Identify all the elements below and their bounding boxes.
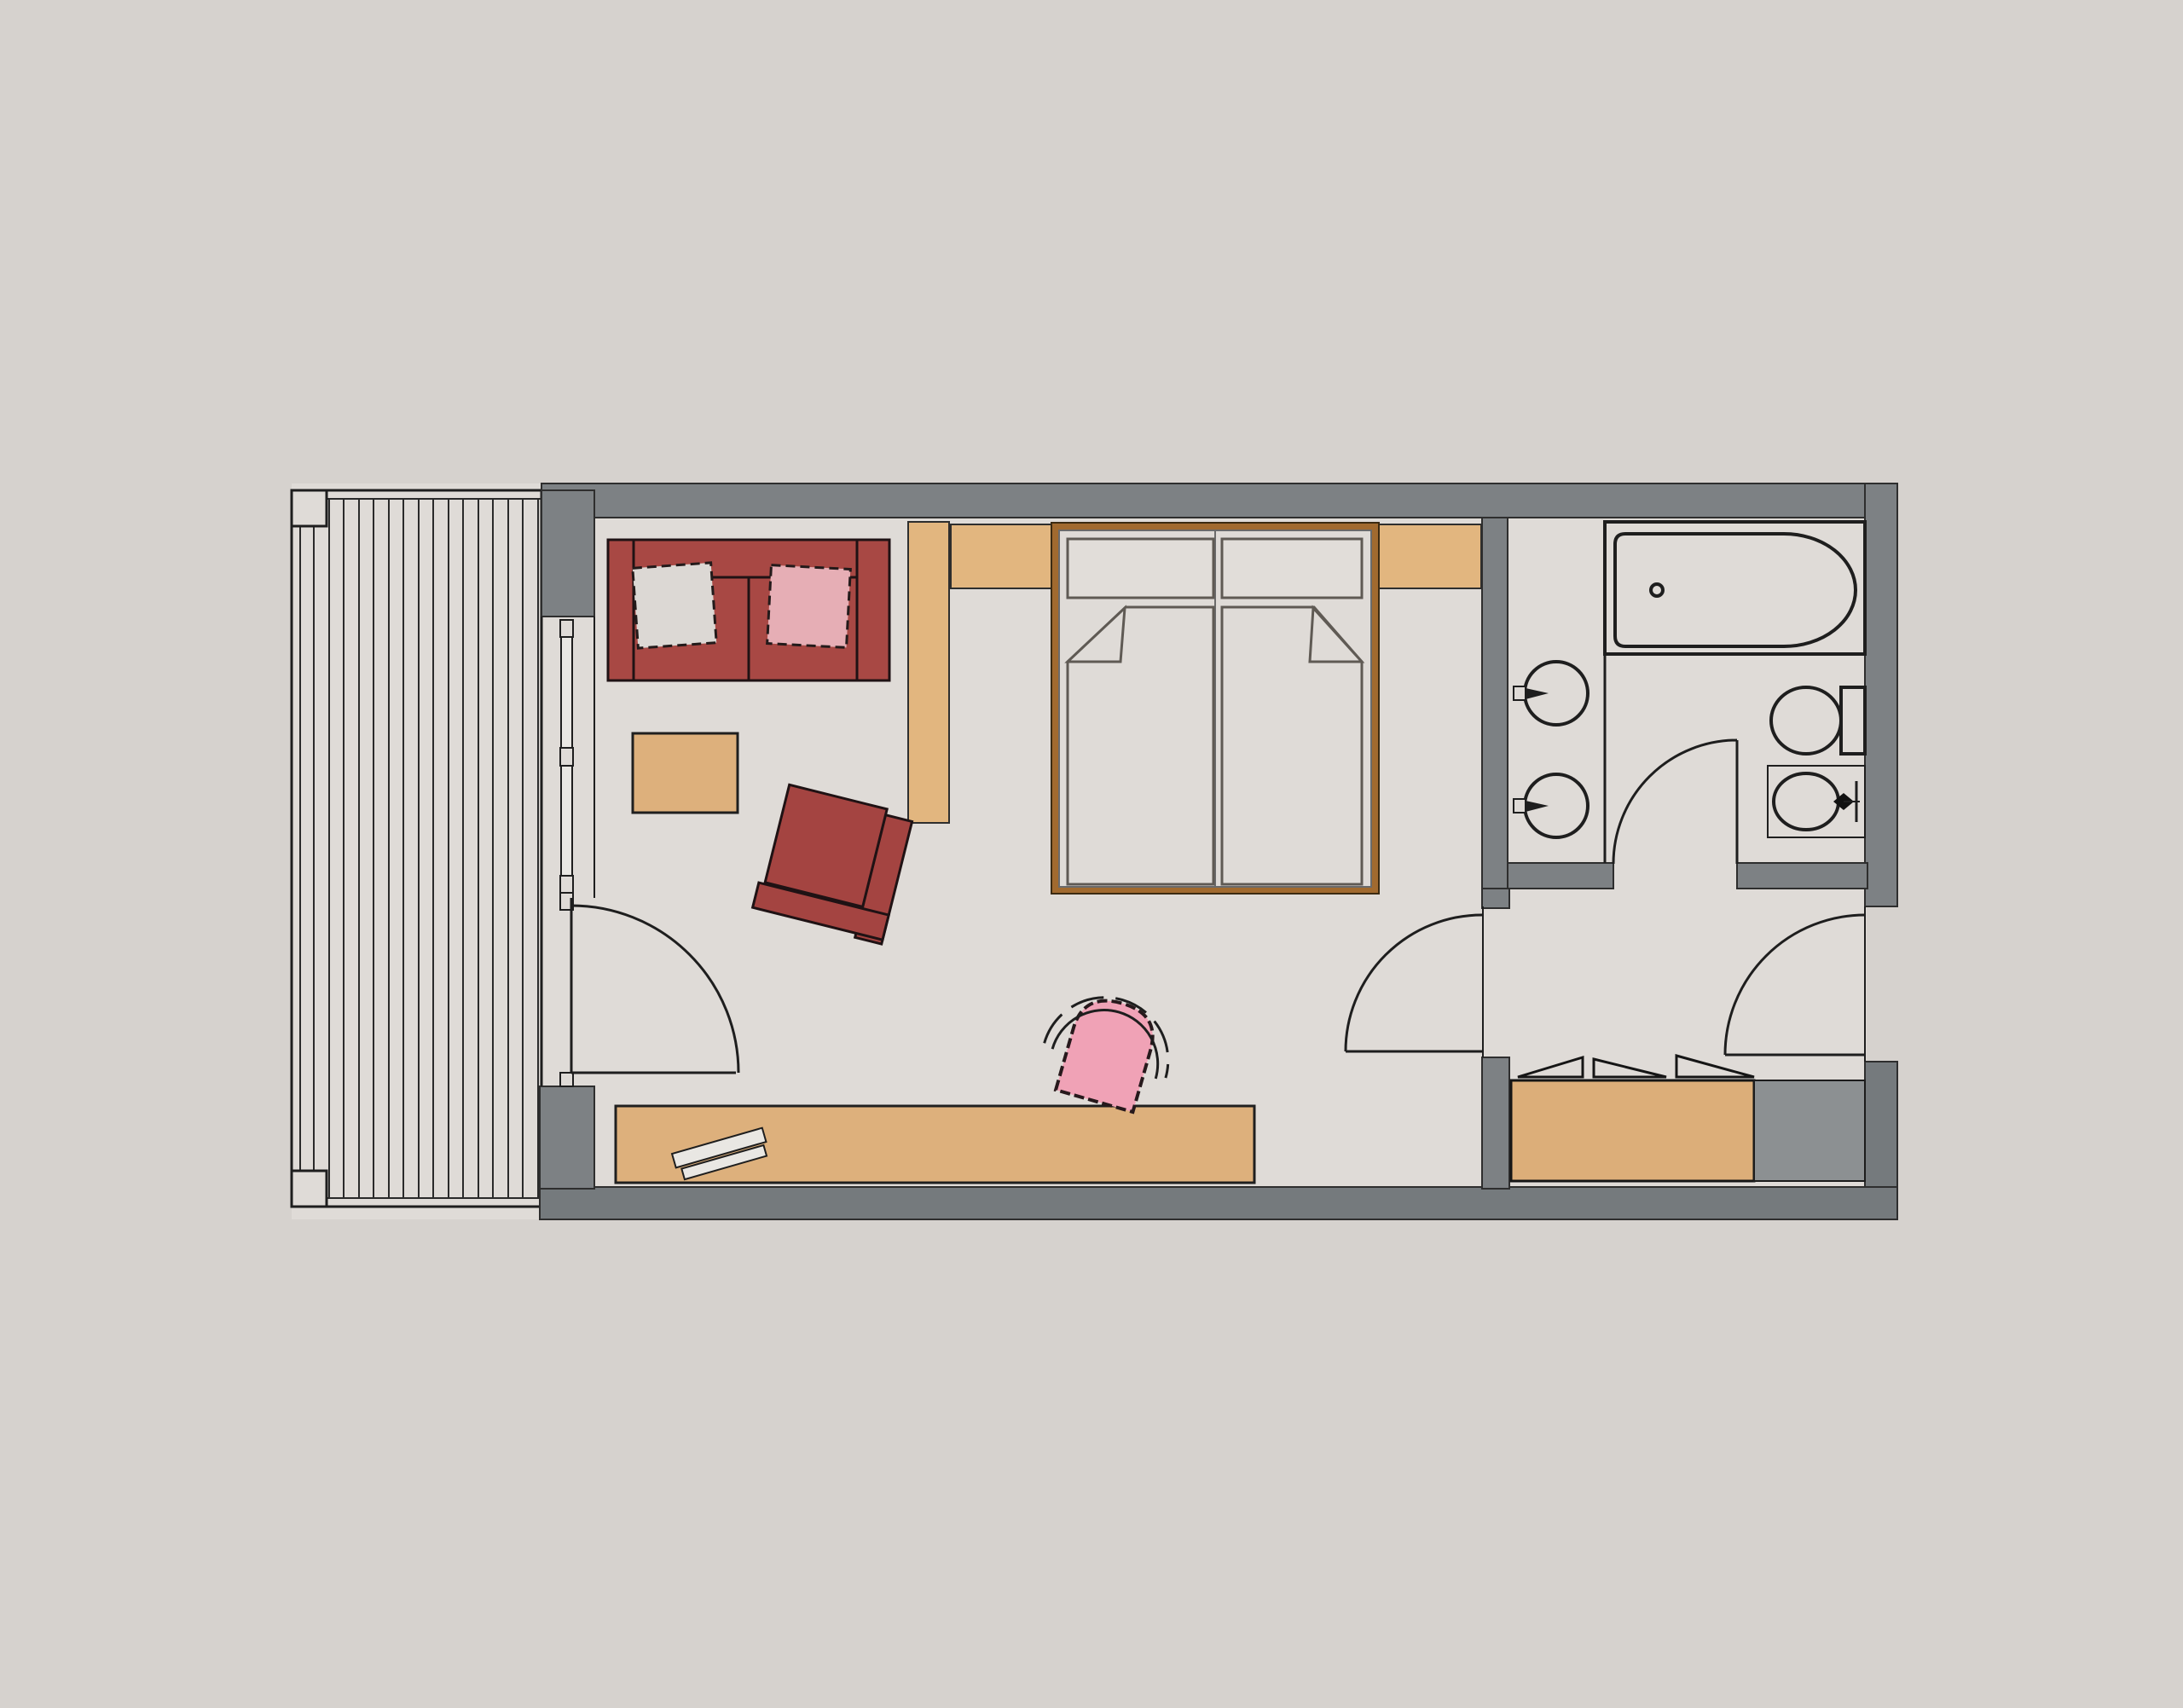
wall-hall-stub-lower [1482,1057,1509,1189]
sofa-pillow-pink-body [767,565,851,648]
bed-pillow-right [1222,539,1362,598]
balcony-glass-panel-upper [561,637,572,748]
wall-bathroom-bottom-left [1508,863,1613,889]
wall-right-upper [1865,483,1897,906]
room-divider-shelf [908,522,949,823]
sink-upper-tap-base [1514,686,1526,700]
bidet-bowl [1774,773,1838,830]
wall-stub-balcony-bottom [540,1086,594,1189]
coffee-table [633,733,738,813]
bed-pillow-left [1068,539,1213,598]
exterior-notch [1867,907,1902,1061]
sofa-pillow-white [633,563,716,648]
double-bed [1051,523,1379,894]
balcony-corner-post-bottom [292,1171,327,1207]
wall-stub-balcony-top [541,490,594,617]
balcony-door-frame-stop-bottom [560,1073,573,1086]
hall-shaft-block [1754,1080,1865,1181]
wall-bedroom-bathroom [1482,518,1508,889]
toilet-bowl [1771,687,1841,754]
floor-plan [0,0,2183,1708]
sink-lower-tap-base [1514,799,1526,813]
sofa-pillow-white-body [633,563,716,648]
balcony-glass-panel-lower [561,766,572,876]
balcony-corner-post-top [292,490,327,526]
wall-bathroom-bottom-right [1737,863,1867,889]
floor-plan-page [0,0,2183,1708]
sofa-pillow-pink [767,565,851,648]
wardrobe [1511,1080,1754,1181]
balcony-door-frame-stop-top [560,620,573,637]
wall-hall-stub-upper [1482,889,1509,908]
wall-bottom [540,1187,1897,1219]
balcony-door-frame-stop-mid [560,748,573,766]
toilet-tank [1841,687,1865,754]
wall-top [541,483,1895,518]
